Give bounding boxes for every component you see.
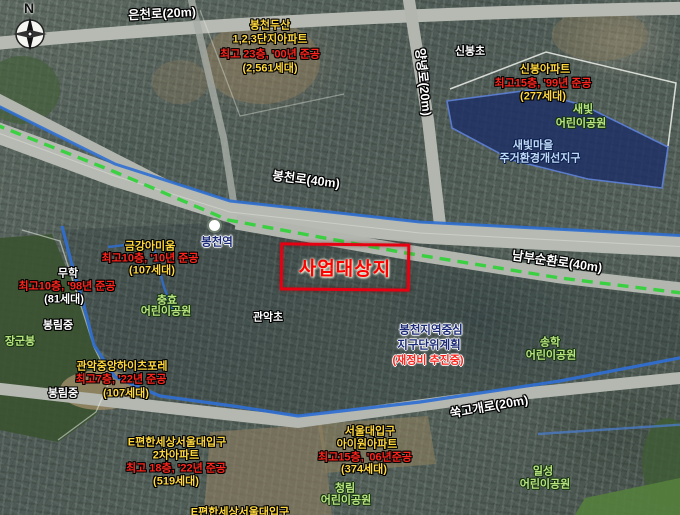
- satellite-map: N 은천로(20m) 봉천로(40m) 양녕로(20m) 남부순환로(40m) …: [0, 0, 680, 515]
- compass-north-label: N: [24, 0, 34, 16]
- project-site-box: 사업대상지: [280, 242, 410, 291]
- saebit-district-polygon: [447, 90, 668, 188]
- apartment-block-ground: [204, 424, 332, 515]
- compass-rose: N: [8, 2, 52, 60]
- sports-field: [575, 478, 680, 515]
- project-site-label: 사업대상지: [299, 253, 392, 281]
- dirt-patch: [152, 60, 208, 104]
- apartment-block-ground: [318, 416, 436, 473]
- dirt-patch: [204, 20, 320, 104]
- road-yangnyeong: [408, 0, 440, 225]
- bongcheon-station-marker: [207, 218, 222, 233]
